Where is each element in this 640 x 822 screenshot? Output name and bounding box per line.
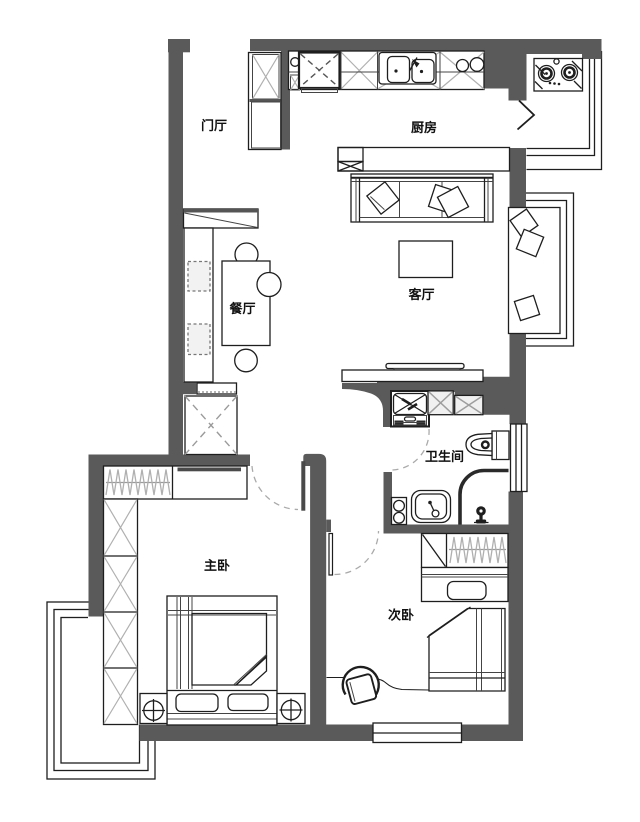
svg-text:餐厅: 餐厅	[228, 301, 255, 316]
svg-text:主卧: 主卧	[204, 558, 230, 573]
svg-text:厨房: 厨房	[411, 120, 437, 135]
svg-text:门厅: 门厅	[201, 118, 227, 133]
svg-text:次卧: 次卧	[388, 608, 414, 623]
svg-text:卫生间: 卫生间	[425, 449, 464, 464]
svg-text:客厅: 客厅	[407, 287, 434, 302]
